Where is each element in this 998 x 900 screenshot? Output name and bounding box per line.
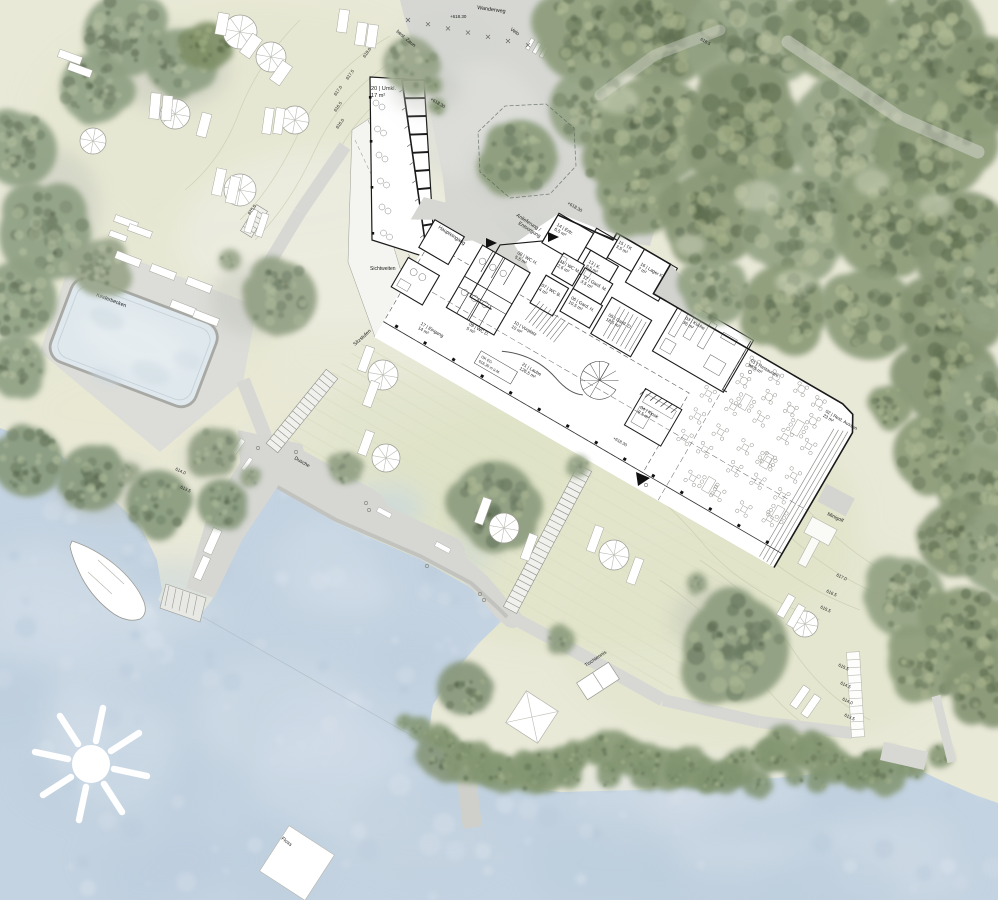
svg-text:17 m²: 17 m²	[371, 93, 385, 99]
svg-text:+618.30: +618.30	[450, 14, 467, 19]
svg-text:Sichtweiten: Sichtweiten	[370, 266, 396, 272]
